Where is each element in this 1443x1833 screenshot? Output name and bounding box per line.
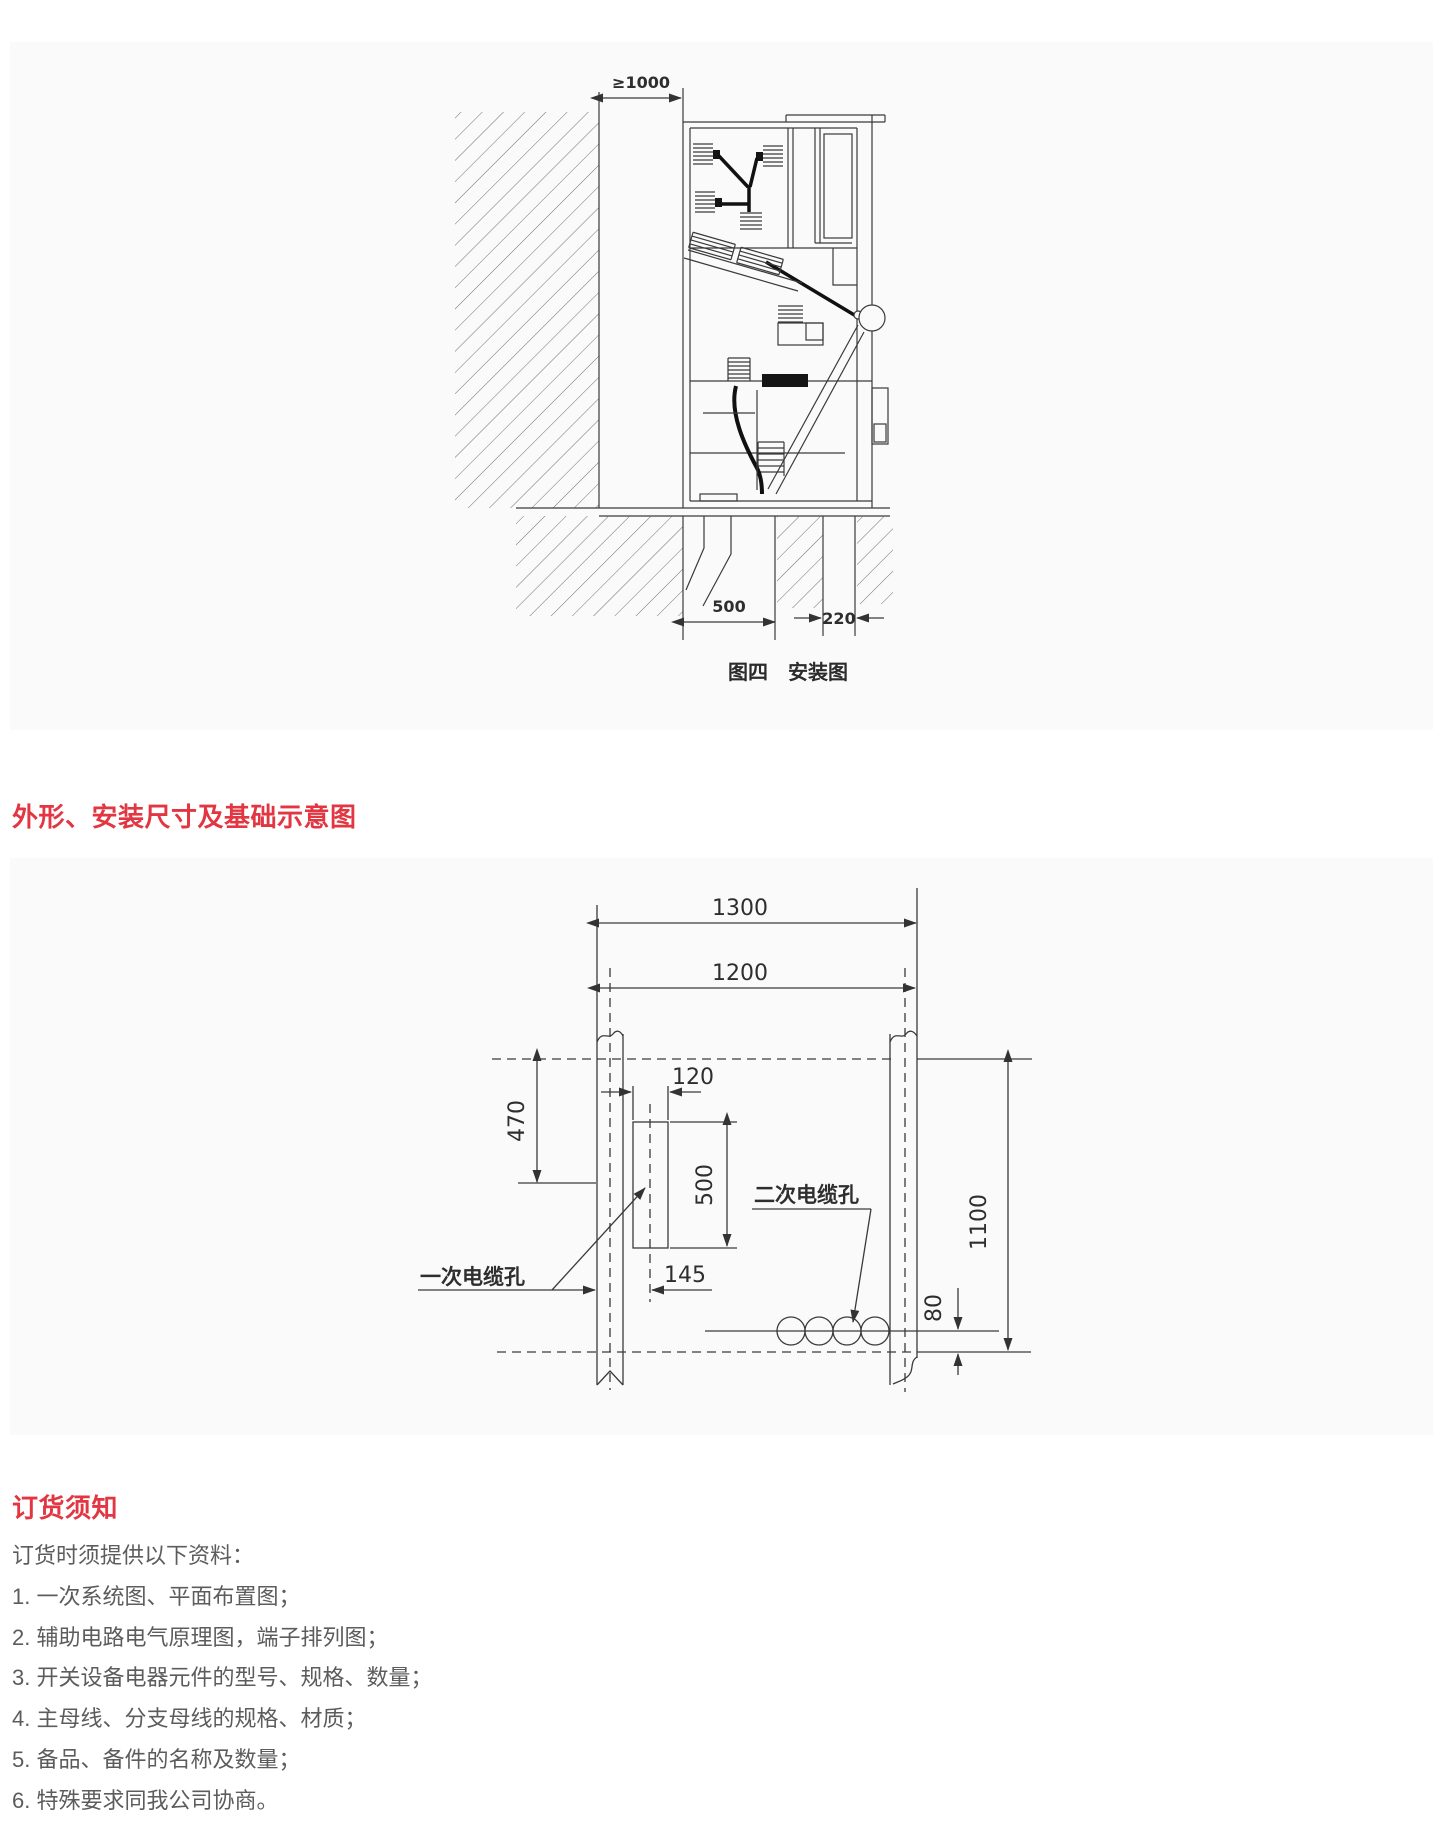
mechanism-circle [859, 305, 885, 331]
primary-cable-hole-label: 一次电缆孔 [420, 1265, 525, 1289]
dim-wall-clearance: ≥1000 [612, 73, 670, 92]
dim-front-offset: 470 [505, 1100, 530, 1142]
breaker-stack-a [728, 358, 750, 381]
ground-hatch-left [516, 516, 683, 616]
dim-hole-length: 500 [693, 1164, 718, 1206]
power-cable [734, 386, 762, 494]
dim-rear-trench: 220 [822, 609, 855, 628]
secondary-cable-hole-label: 二次电缆孔 [754, 1183, 859, 1207]
dim-hole-width: 120 [672, 1065, 714, 1090]
bushing-assembly-left [689, 232, 736, 260]
dim-secondary-offset: 80 [922, 1294, 947, 1322]
ordering-heading: 订货须知 [12, 1488, 118, 1525]
breaker-stack-upper [778, 306, 823, 345]
figure4-panel: ≥1000 500 220 图四 安装图 [10, 42, 1433, 730]
contact-block [762, 374, 808, 387]
dim-foundation-width: 1200 [712, 961, 768, 986]
dim-front-trench: 500 [712, 597, 745, 616]
primary-label-leader [552, 1188, 645, 1290]
secondary-label-leader [853, 1209, 871, 1322]
ordering-item: 3. 开关设备电器元件的型号、规格、数量； [12, 1658, 1112, 1699]
busbar-insulator-2 [756, 146, 783, 166]
figure4-drawing [455, 88, 893, 640]
busbar-conductors [718, 155, 856, 316]
ordering-notes: 订货时须提供以下资料： 1. 一次系统图、平面布置图； 2. 辅助电路电气原理图… [12, 1536, 1112, 1822]
busbar-insulator-1 [693, 144, 720, 164]
busbar-insulator-3 [695, 192, 722, 212]
dim-foundation-depth: 1100 [967, 1194, 992, 1250]
figure4-caption: 图四 安装图 [728, 660, 848, 684]
outline-heading: 外形、安装尺寸及基础示意图 [12, 797, 357, 834]
ordering-item: 1. 一次系统图、平面布置图； [12, 1577, 1112, 1618]
ground-hatch-right [857, 516, 893, 604]
outline-panel: 1300 1200 470 120 500 145 80 1100 一次电缆孔 … [10, 858, 1433, 1435]
dim-overall-width: 1300 [712, 896, 768, 921]
ordering-item: 6. 特殊要求同我公司协商。 [12, 1781, 1112, 1822]
ordering-item: 4. 主母线、分支母线的规格、材质； [12, 1699, 1112, 1740]
dim-hole-center-offset: 145 [664, 1263, 706, 1288]
ordering-item: 2. 辅助电路电气原理图，端子排列图； [12, 1618, 1112, 1659]
ordering-item: 5. 备品、备件的名称及数量； [12, 1740, 1112, 1781]
ground-hatch-pier [777, 516, 823, 608]
wall-hatch [455, 112, 599, 508]
outline-dimension-figure: 1300 1200 470 120 500 145 80 1100 一次电缆孔 … [10, 858, 1433, 1435]
breaker-stack-b [758, 442, 784, 476]
support-insulator-stack [740, 213, 762, 229]
installation-figure: ≥1000 500 220 图四 安装图 [10, 42, 1433, 730]
ordering-intro: 订货时须提供以下资料： [12, 1536, 1112, 1577]
